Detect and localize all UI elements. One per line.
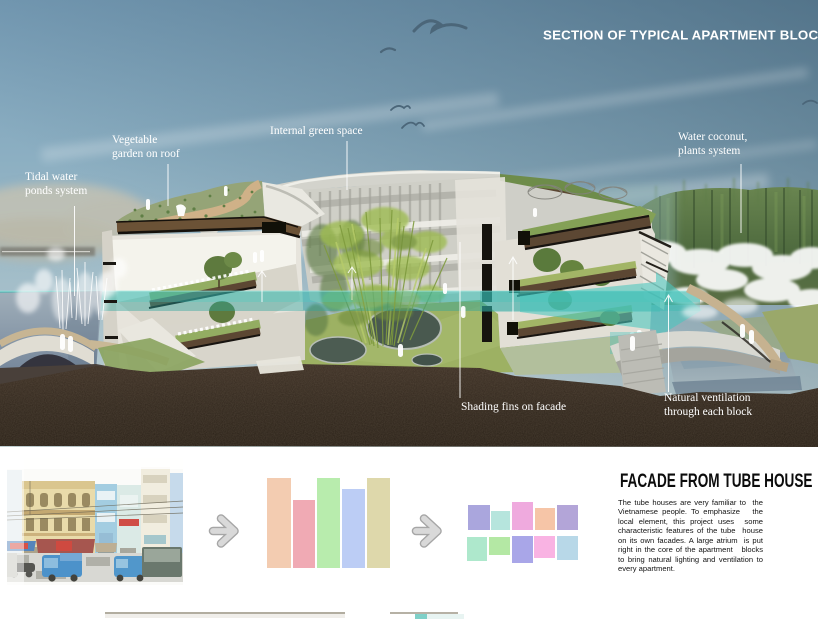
svg-text:SECTION OF TYPICAL APARTMENT B: SECTION OF TYPICAL APARTMENT BLOCK xyxy=(543,28,818,43)
